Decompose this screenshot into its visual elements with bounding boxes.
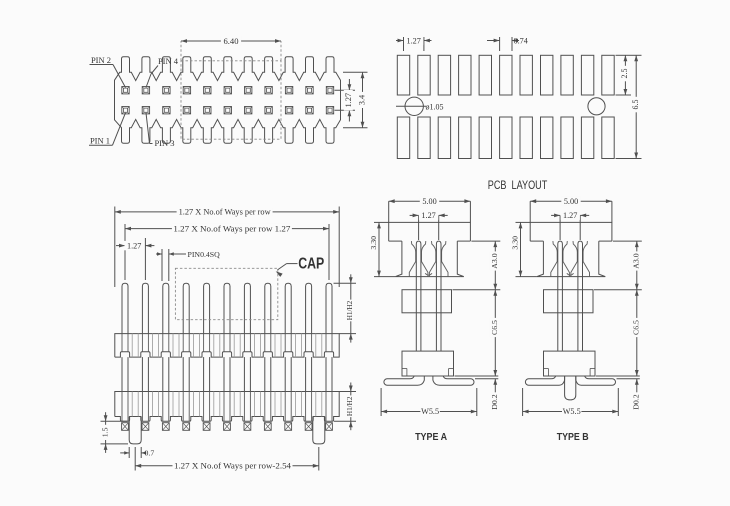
svg-text:1.27 X No.of Ways per row 1.27: 1.27 X No.of Ways per row 1.27 — [173, 225, 290, 234]
svg-text:C6.5: C6.5 — [631, 320, 640, 335]
svg-text:6.5: 6.5 — [631, 100, 640, 110]
svg-text:0.74: 0.74 — [514, 37, 528, 46]
svg-text:1.27: 1.27 — [407, 36, 421, 45]
svg-text:3.4: 3.4 — [358, 94, 367, 105]
svg-text:2.5: 2.5 — [620, 69, 629, 79]
svg-text:D0.2: D0.2 — [631, 394, 640, 409]
svg-text:5.00: 5.00 — [422, 197, 436, 206]
svg-text:PIN 4: PIN 4 — [158, 56, 179, 66]
svg-text:A3.0: A3.0 — [631, 253, 640, 268]
svg-text:1.27 X No.of Ways per row: 1.27 X No.of Ways per row — [179, 208, 271, 217]
svg-text:PIN 3: PIN 3 — [154, 138, 174, 148]
svg-text:H1/H2: H1/H2 — [346, 300, 354, 320]
svg-text:3.30: 3.30 — [369, 236, 378, 250]
svg-text:PIN 2: PIN 2 — [91, 55, 111, 65]
svg-text:1.27 X No.of Ways per row-2.54: 1.27 X No.of Ways per row-2.54 — [174, 462, 291, 471]
svg-text:1.27: 1.27 — [563, 211, 577, 220]
svg-text:3.30: 3.30 — [511, 236, 520, 250]
svg-text:C6.5: C6.5 — [490, 320, 499, 335]
svg-text:1.27: 1.27 — [127, 242, 141, 251]
svg-text:CAP: CAP — [298, 255, 324, 272]
svg-text:TYPE B: TYPE B — [557, 431, 589, 443]
svg-text:A3.0: A3.0 — [490, 253, 499, 268]
svg-text:W5.5: W5.5 — [421, 407, 439, 416]
svg-text:H1/H2: H1/H2 — [346, 396, 354, 416]
svg-text:W5.5: W5.5 — [563, 407, 581, 416]
svg-text:0.7: 0.7 — [145, 449, 155, 458]
svg-text:D0.2: D0.2 — [490, 394, 499, 409]
svg-text:PCB LAYOUT: PCB LAYOUT — [488, 180, 548, 192]
svg-text:PIN 1: PIN 1 — [90, 136, 110, 146]
svg-text:1.5: 1.5 — [101, 427, 110, 437]
svg-text:ø1.05: ø1.05 — [426, 102, 444, 111]
svg-text:1.27: 1.27 — [344, 93, 353, 108]
svg-text:5.00: 5.00 — [564, 197, 578, 206]
svg-text:1.27: 1.27 — [421, 211, 435, 220]
svg-text:TYPE A: TYPE A — [415, 431, 447, 443]
svg-text:PIN0.4SQ: PIN0.4SQ — [188, 250, 221, 259]
svg-text:6.40: 6.40 — [223, 36, 238, 46]
